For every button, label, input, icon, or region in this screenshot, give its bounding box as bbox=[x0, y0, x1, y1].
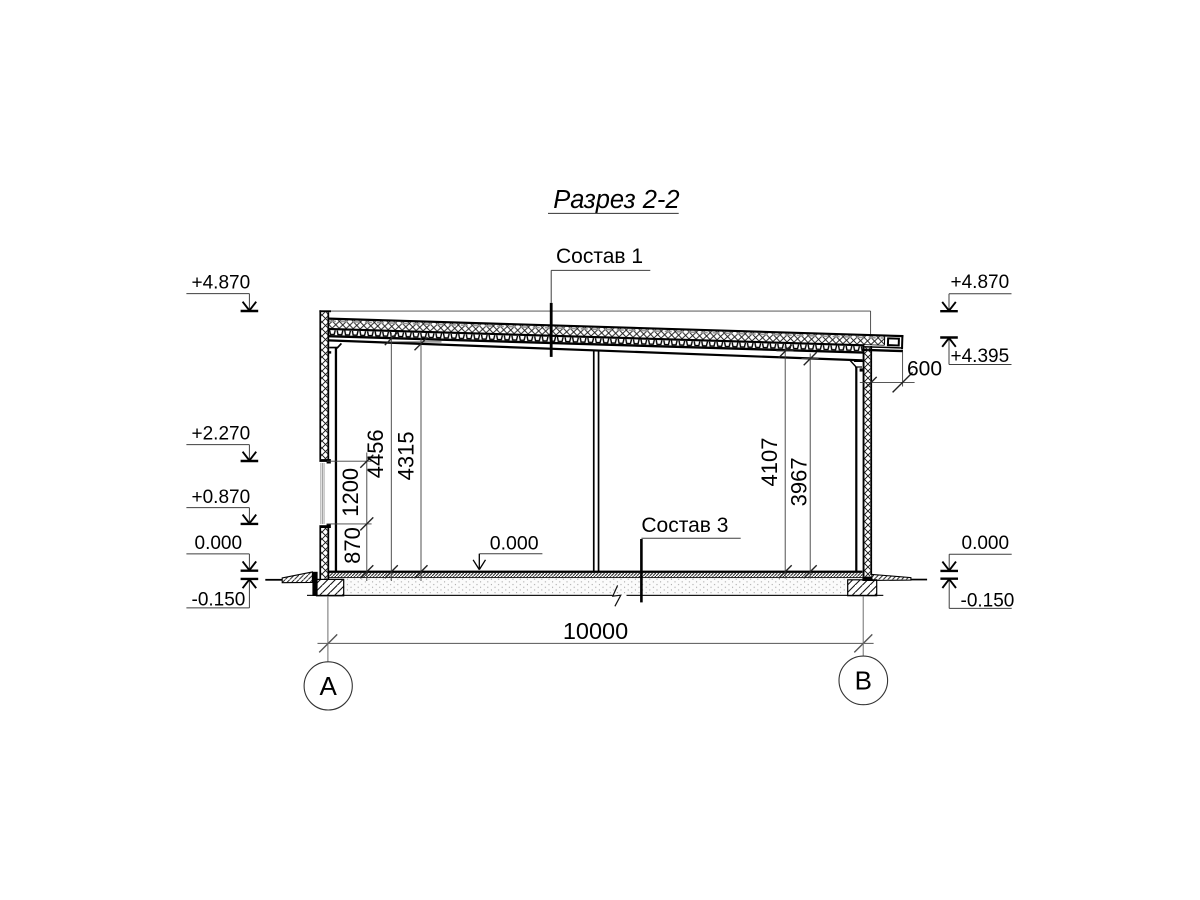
svg-text:3967: 3967 bbox=[787, 457, 812, 506]
svg-text:0.000: 0.000 bbox=[195, 533, 243, 554]
svg-text:-0.150: -0.150 bbox=[192, 589, 246, 610]
svg-text:600: 600 bbox=[907, 358, 942, 381]
svg-text:1200: 1200 bbox=[338, 468, 363, 517]
svg-text:Разрез 2-2: Разрез 2-2 bbox=[553, 186, 679, 214]
svg-text:+0.870: +0.870 bbox=[192, 487, 251, 508]
svg-text:+2.270: +2.270 bbox=[192, 423, 251, 444]
svg-text:Состав 3: Состав 3 bbox=[641, 514, 728, 537]
svg-text:0.000: 0.000 bbox=[962, 533, 1010, 554]
svg-text:-0.150: -0.150 bbox=[961, 591, 1015, 612]
svg-text:Состав 1: Состав 1 bbox=[556, 245, 643, 268]
svg-text:+4.395: +4.395 bbox=[951, 346, 1010, 367]
svg-text:0.000: 0.000 bbox=[490, 533, 539, 555]
svg-text:4107: 4107 bbox=[757, 438, 782, 487]
svg-text:4315: 4315 bbox=[394, 431, 419, 480]
svg-text:4456: 4456 bbox=[363, 429, 388, 478]
svg-text:+4.870: +4.870 bbox=[192, 273, 251, 294]
svg-text:+4.870: +4.870 bbox=[951, 272, 1010, 293]
svg-text:А: А bbox=[320, 671, 338, 701]
svg-text:870: 870 bbox=[340, 527, 365, 564]
svg-text:В: В bbox=[855, 665, 872, 695]
svg-text:10000: 10000 bbox=[563, 618, 628, 644]
